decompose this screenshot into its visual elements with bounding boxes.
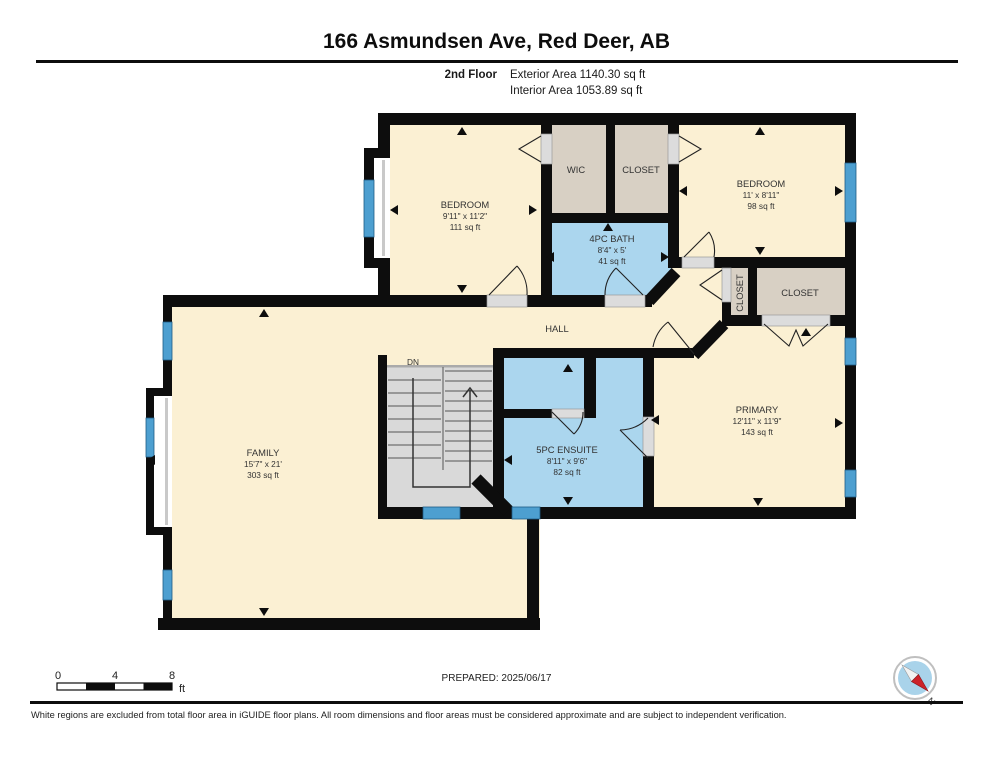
bedroom1-area: 111 sq ft bbox=[450, 222, 481, 232]
family-label: FAMILY bbox=[247, 447, 280, 458]
family-bay-window bbox=[146, 418, 154, 457]
bedroom2-dims: 11' x 8'11" bbox=[743, 190, 780, 200]
hall-label: HALL bbox=[545, 323, 568, 334]
ensuite-label: 5PC ENSUITE bbox=[536, 444, 597, 455]
bath-label: 4PC BATH bbox=[589, 233, 634, 244]
primary-window-lower bbox=[845, 470, 856, 497]
scale-unit: ft bbox=[179, 683, 185, 695]
closet-vertical-label: CLOSET bbox=[734, 274, 745, 312]
bath-area: 41 sq ft bbox=[598, 256, 626, 266]
primary-dims: 12'11" x 11'9" bbox=[733, 416, 782, 426]
closet-primary-label: CLOSET bbox=[781, 287, 819, 298]
primary-area: 143 sq ft bbox=[741, 427, 774, 437]
family-window-upper bbox=[163, 322, 172, 360]
primary-label: PRIMARY bbox=[736, 404, 779, 415]
footer-divider bbox=[30, 701, 963, 704]
family-window-lower bbox=[163, 570, 172, 600]
wic-label: WIC bbox=[567, 164, 585, 175]
family-dims: 15'7" x 21' bbox=[244, 459, 282, 469]
bedroom1-dims: 9'11" x 11'2" bbox=[443, 211, 487, 221]
primary-window-upper bbox=[845, 338, 856, 365]
stair-wall-window bbox=[423, 507, 460, 519]
family-area: 303 sq ft bbox=[247, 470, 280, 480]
stairs-dn-label: DN bbox=[407, 357, 419, 367]
floor-plan-drawing: BEDROOM 9'11" x 11'2" 111 sq ft WIC CLOS… bbox=[0, 0, 993, 768]
closet-top-label: CLOSET bbox=[622, 164, 660, 175]
disclaimer-text: White regions are excluded from total fl… bbox=[31, 710, 961, 720]
bedroom2-area: 98 sq ft bbox=[747, 201, 775, 211]
stair-edge-line bbox=[387, 365, 493, 368]
bedroom2-window bbox=[845, 163, 856, 222]
bedroom1-floor bbox=[384, 119, 546, 301]
ensuite-window bbox=[512, 507, 540, 519]
floor-plan-page: 166 Asmundsen Ave, Red Deer, AB 2nd Floo… bbox=[0, 0, 993, 768]
prepared-date: PREPARED: 2025/06/17 bbox=[0, 673, 993, 684]
bath-dims: 8'4" x 5' bbox=[598, 245, 627, 255]
ensuite-dims: 8'11" x 9'6" bbox=[547, 456, 587, 466]
ensuite-area: 82 sq ft bbox=[553, 467, 581, 477]
bedroom2-label: BEDROOM bbox=[737, 178, 786, 189]
bedroom1-window bbox=[364, 180, 374, 237]
bedroom1-label: BEDROOM bbox=[441, 199, 490, 210]
